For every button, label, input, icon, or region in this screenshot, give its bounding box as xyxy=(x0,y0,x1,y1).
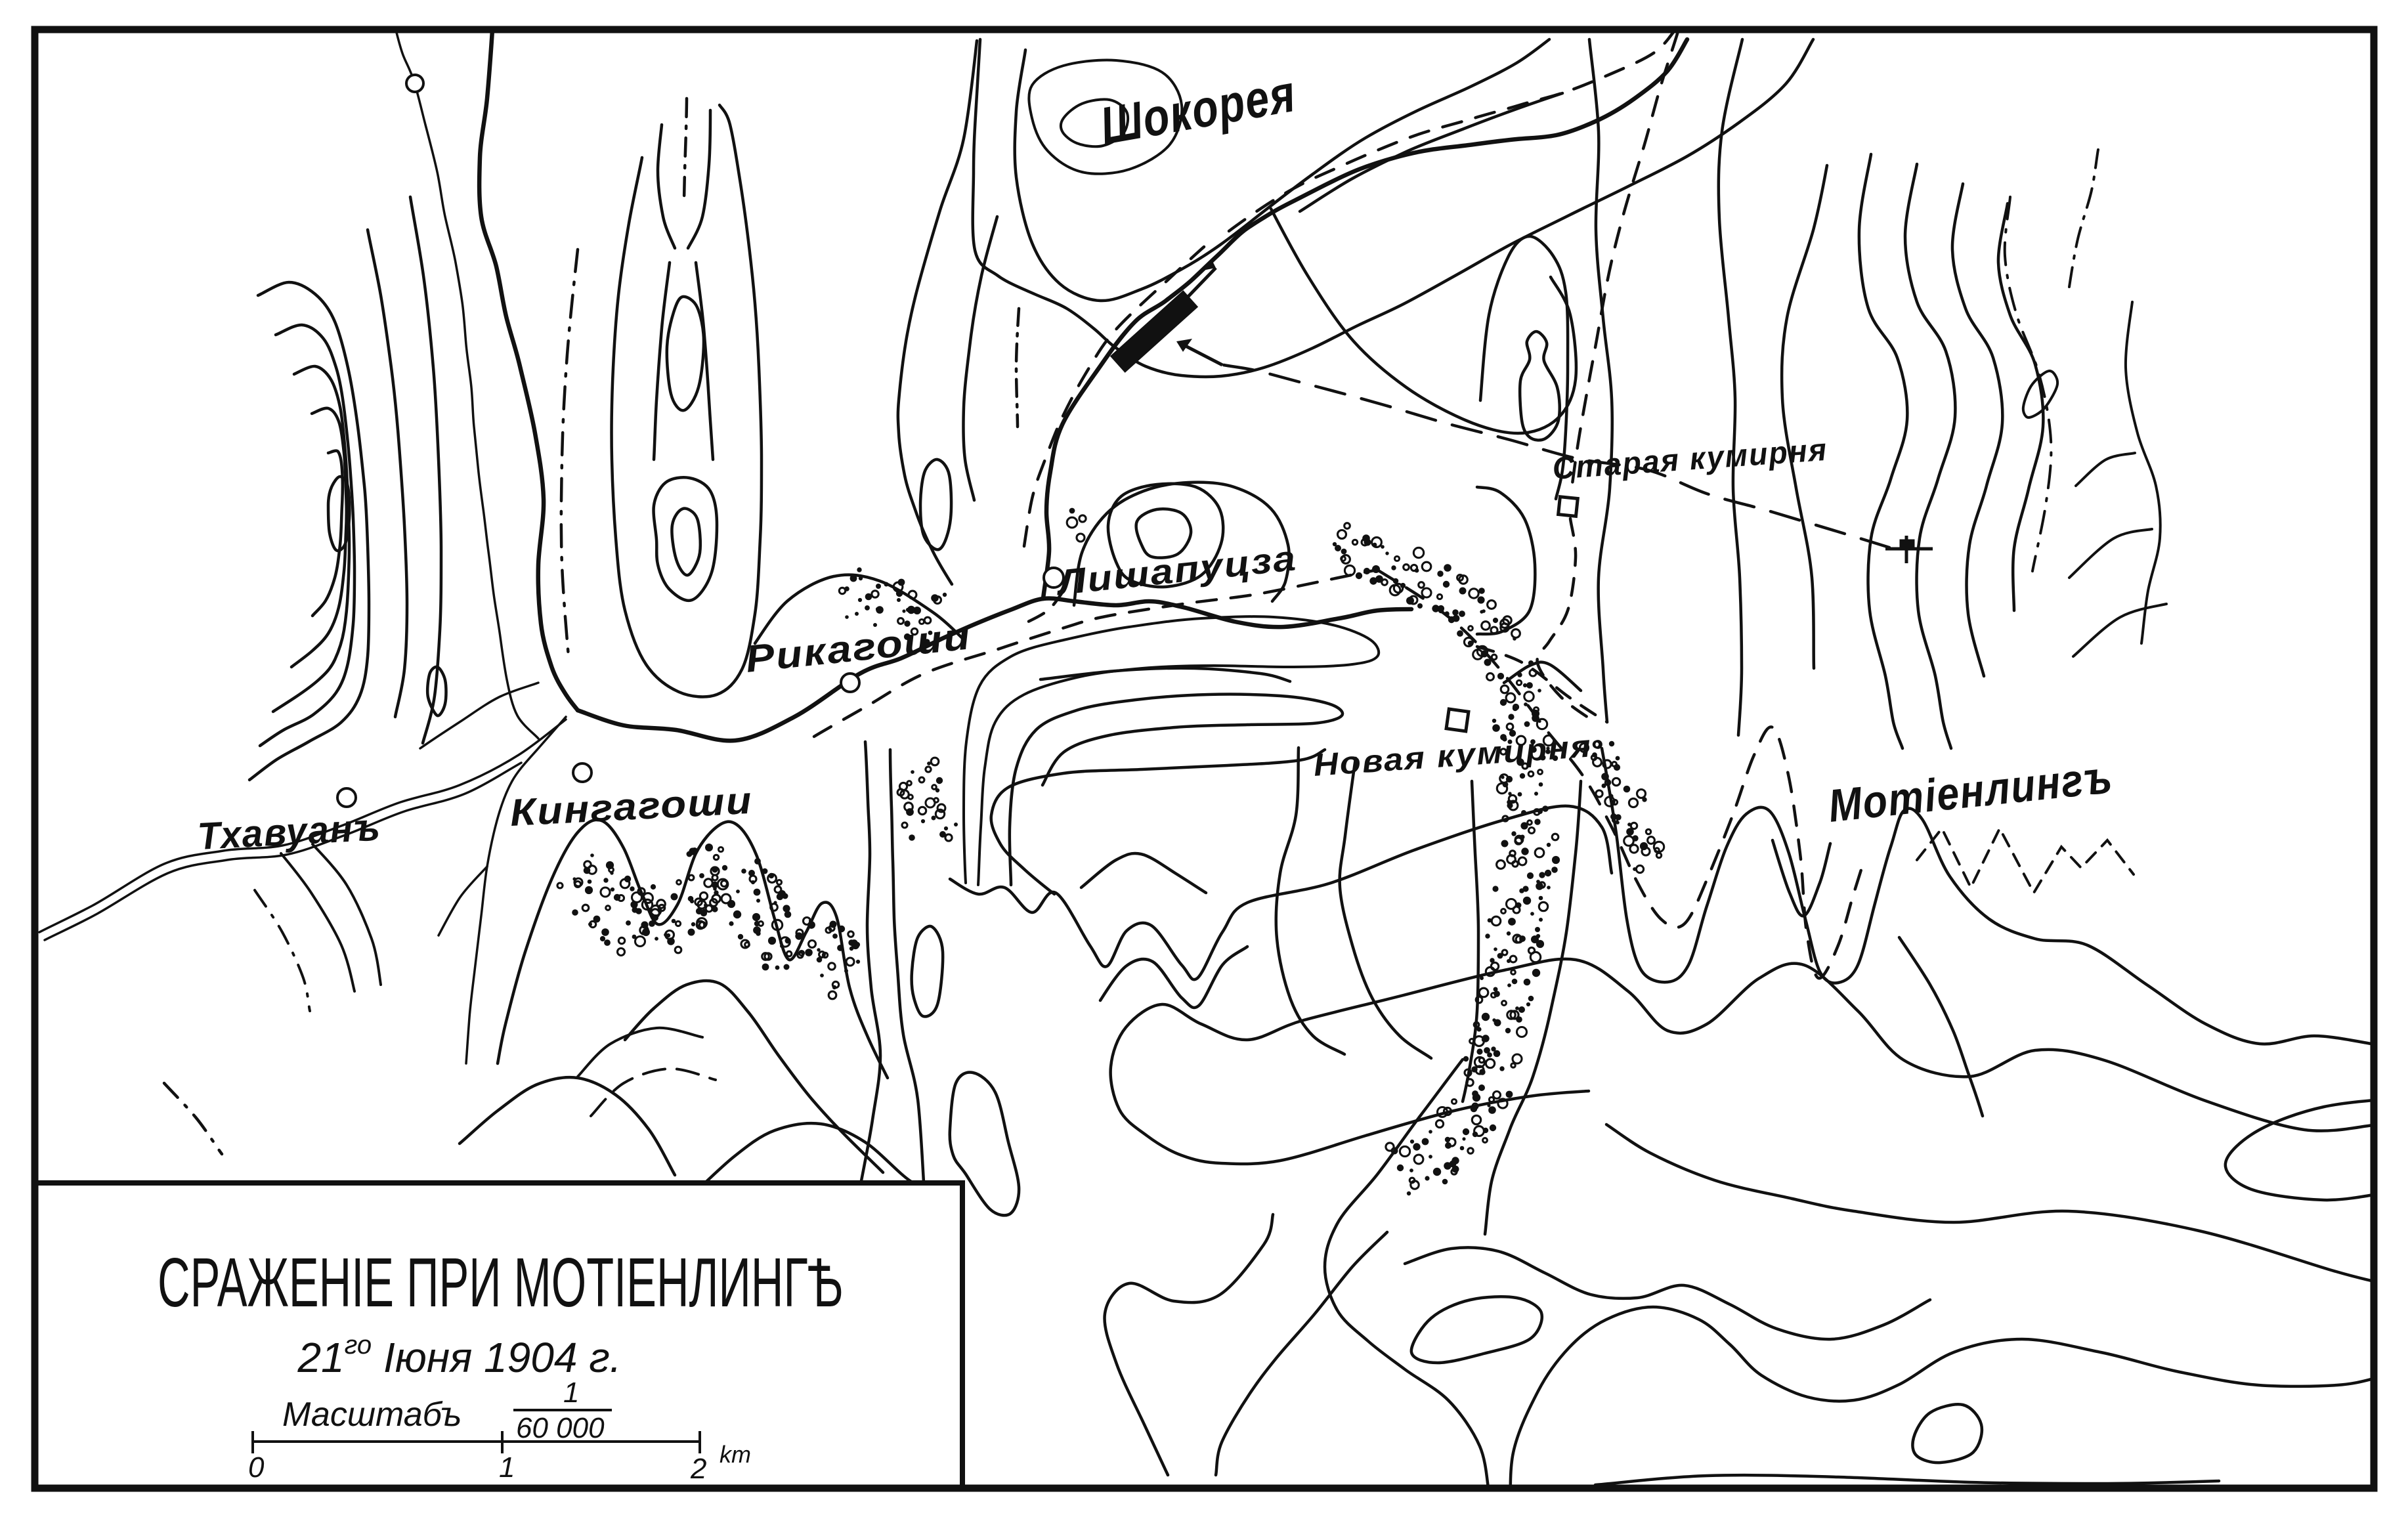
svg-text:1: 1 xyxy=(499,1451,515,1484)
svg-text:Масштабъ: Масштабъ xyxy=(282,1396,462,1434)
svg-text:2: 2 xyxy=(690,1453,706,1485)
svg-text:km: km xyxy=(720,1441,751,1468)
svg-text:60 000: 60 000 xyxy=(516,1412,605,1444)
svg-text:СРАЖЕНІЕ ПРИ МОТІЕНЛИНГѢ: СРАЖЕНІЕ ПРИ МОТІЕНЛИНГѢ xyxy=(158,1244,843,1321)
svg-text:1: 1 xyxy=(563,1377,579,1409)
svg-text:0: 0 xyxy=(248,1451,265,1484)
